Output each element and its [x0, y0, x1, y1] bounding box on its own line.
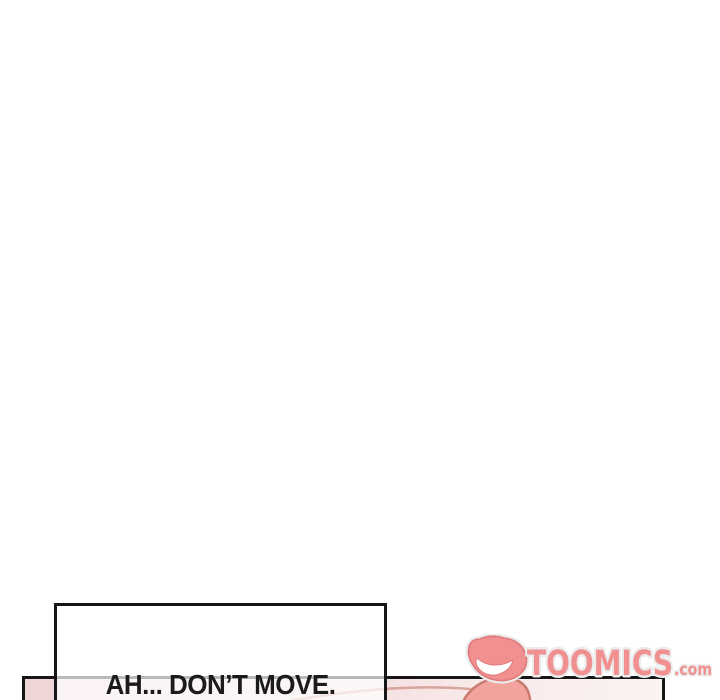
- toomics-tld-text: .com: [674, 660, 712, 680]
- toomics-grin-icon: [469, 636, 527, 680]
- grin-mouth: [476, 658, 513, 675]
- speech-box: AH... DON’T MOVE.: [54, 603, 387, 700]
- speech-text: AH... DON’T MOVE.: [57, 669, 384, 699]
- page-blank-area: [0, 0, 720, 603]
- comic-page: AH... DON’T MOVE. TOOMICS .com: [0, 0, 720, 700]
